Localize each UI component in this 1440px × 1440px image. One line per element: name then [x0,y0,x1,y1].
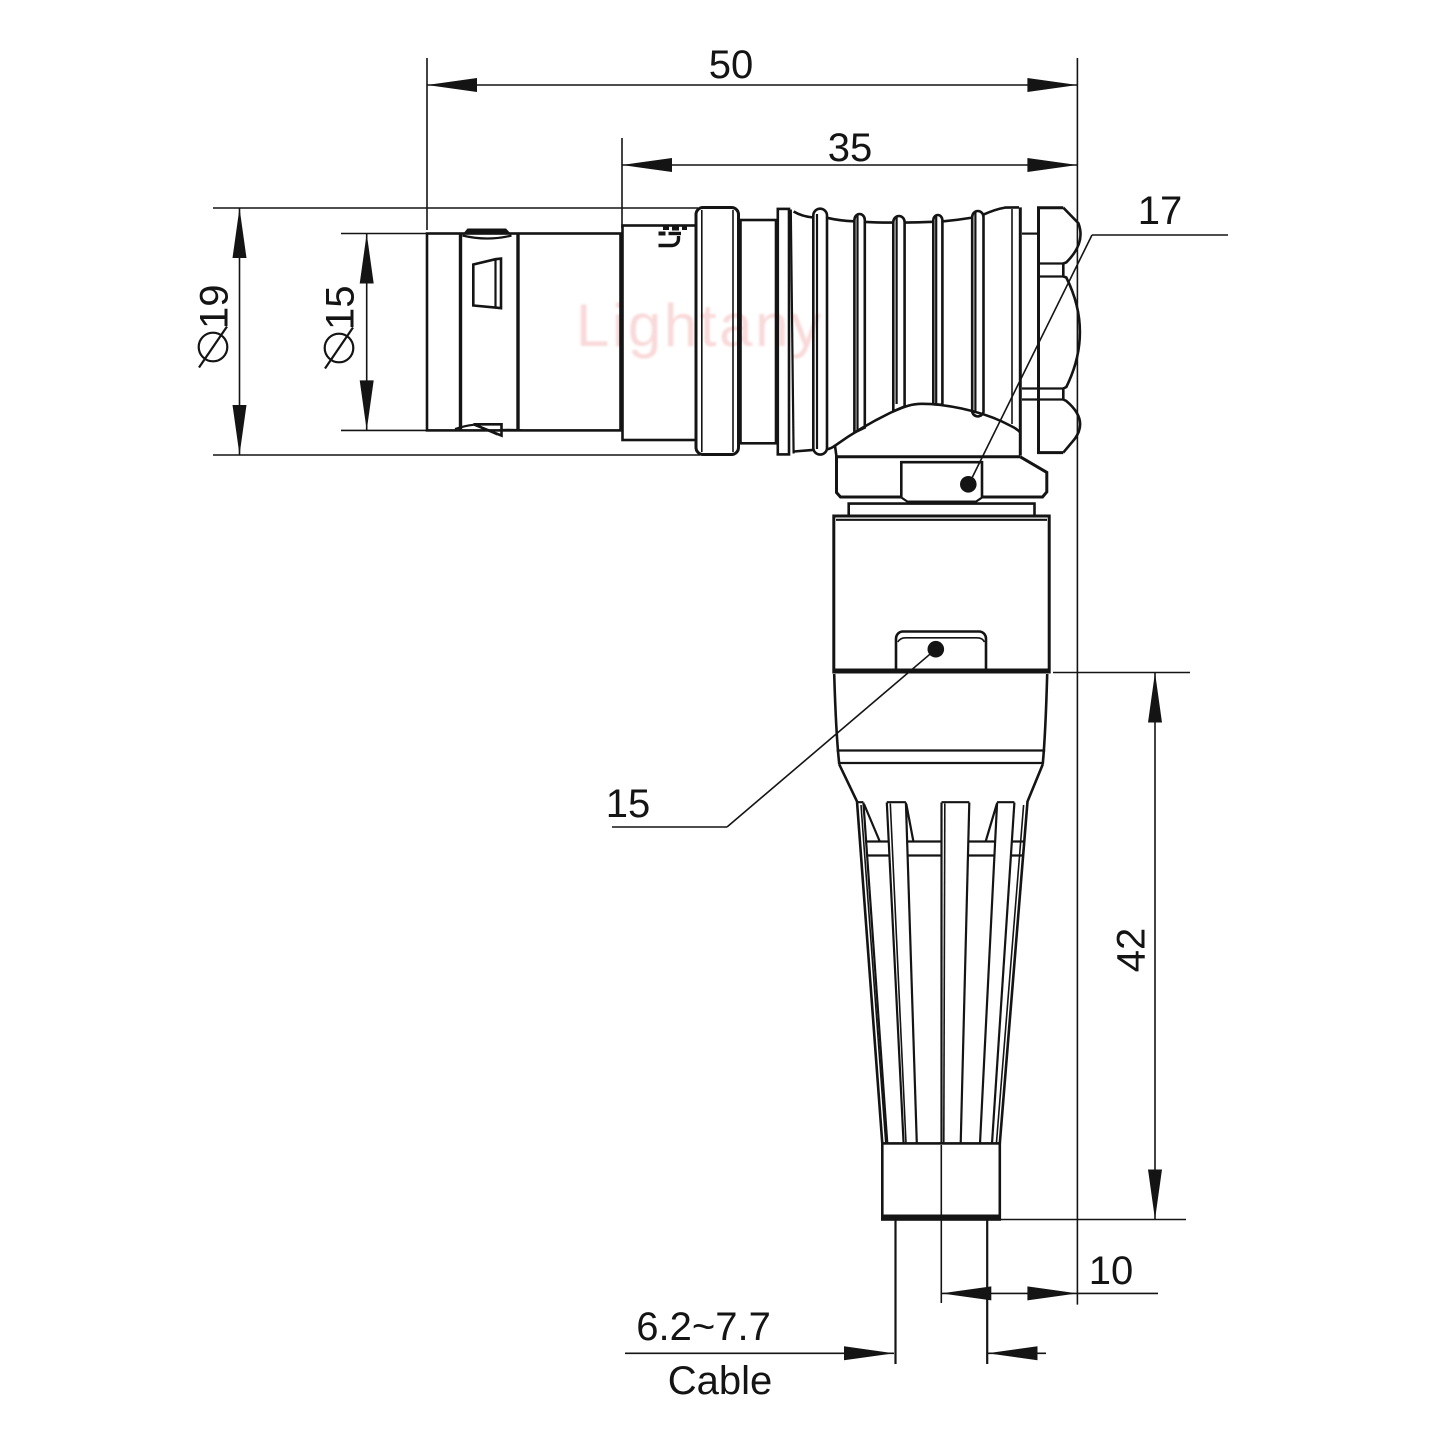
svg-text:15: 15 [319,286,363,331]
svg-text:Lightany: Lightany [576,292,824,359]
svg-text:Cable: Cable [668,1359,773,1403]
svg-text:42: 42 [1110,928,1154,973]
svg-text:15: 15 [606,782,651,826]
svg-text:6.2~7.7: 6.2~7.7 [636,1305,771,1349]
svg-text:50: 50 [709,43,754,87]
svg-text:10: 10 [1089,1249,1134,1293]
svg-text:17: 17 [1138,189,1183,233]
svg-text:19: 19 [193,285,237,330]
svg-text:35: 35 [828,126,873,170]
